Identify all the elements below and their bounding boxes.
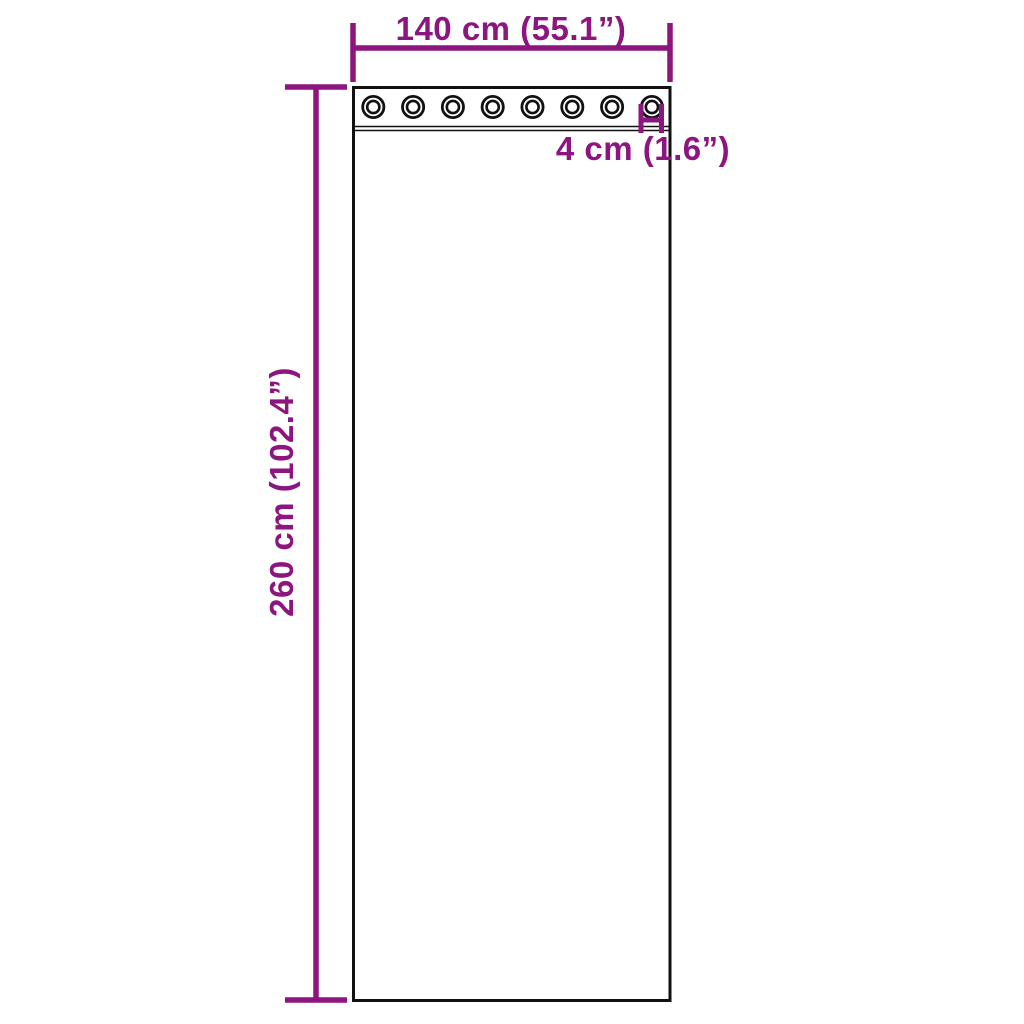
height-dimension: 260 cm (102.4”) bbox=[263, 87, 347, 1000]
width-dimension: 140 cm (55.1”) bbox=[353, 10, 670, 82]
height-dimension-label: 260 cm (102.4”) bbox=[263, 367, 300, 617]
diagram-stage: 140 cm (55.1”) 260 cm (102.4”) 4 cm (1.6… bbox=[0, 0, 1024, 1024]
curtain-dimension-diagram: 140 cm (55.1”) 260 cm (102.4”) 4 cm (1.6… bbox=[0, 0, 1024, 1024]
width-dimension-label: 140 cm (55.1”) bbox=[396, 10, 627, 47]
grommet-dimension-label: 4 cm (1.6”) bbox=[556, 130, 730, 167]
curtain-panel bbox=[354, 88, 671, 1001]
